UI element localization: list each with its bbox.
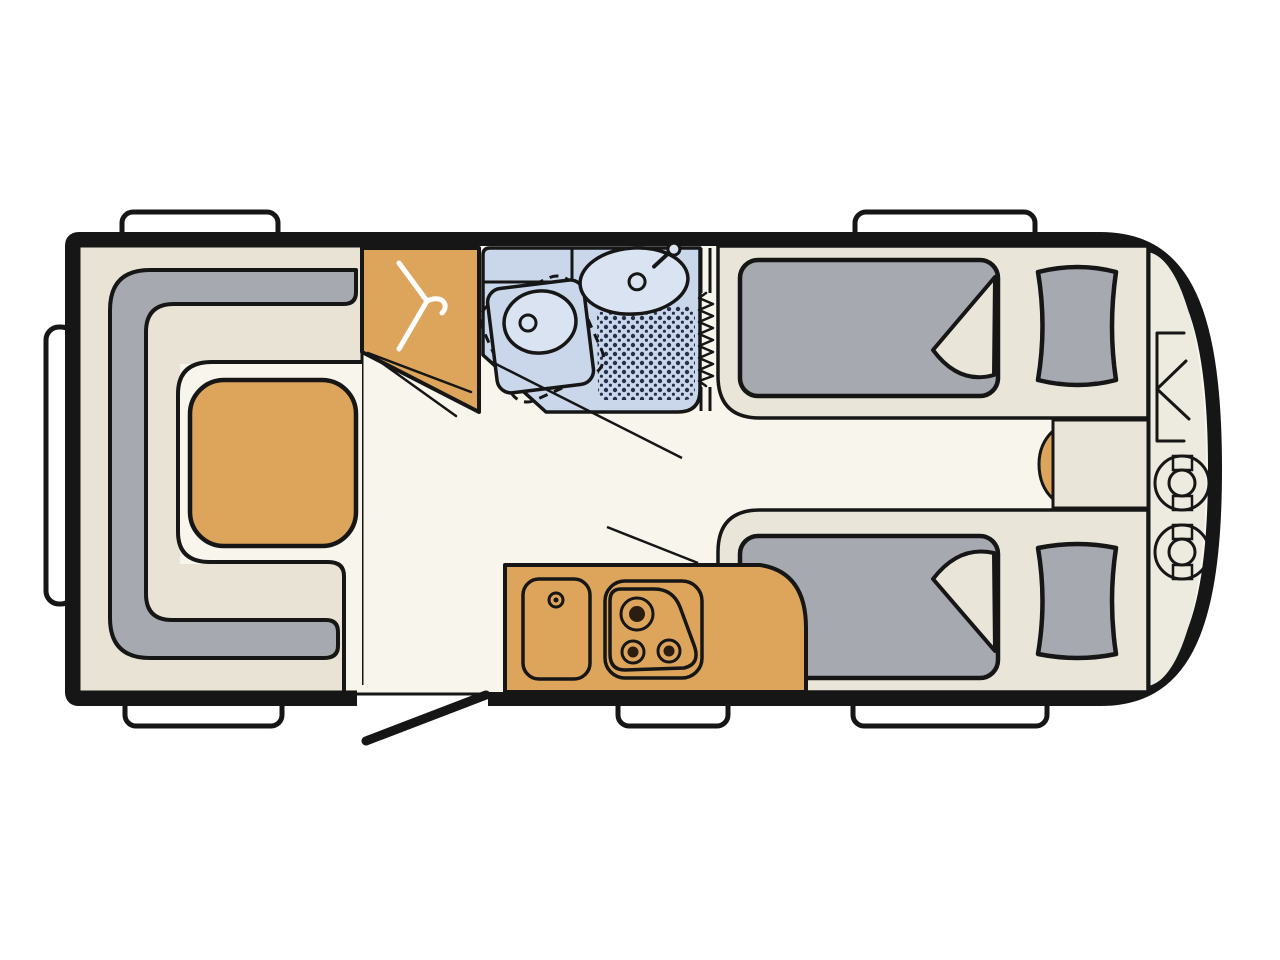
caravan-floorplan <box>0 0 1280 960</box>
floorplan-canvas <box>0 0 1280 960</box>
burner-small-left-center <box>628 647 639 658</box>
sink-drain-dot <box>554 598 559 603</box>
shower-tray <box>597 306 695 400</box>
bed-bottom-pillow <box>1038 544 1116 658</box>
bedside-chest <box>1053 420 1148 508</box>
lounge-floor-inset-2 <box>344 564 362 690</box>
burner-large-center <box>629 606 645 622</box>
burner-small-right-center <box>664 646 675 657</box>
tap-knob-icon <box>667 243 680 256</box>
lounge-table <box>190 380 356 546</box>
bed-top-pillow <box>1038 267 1116 385</box>
